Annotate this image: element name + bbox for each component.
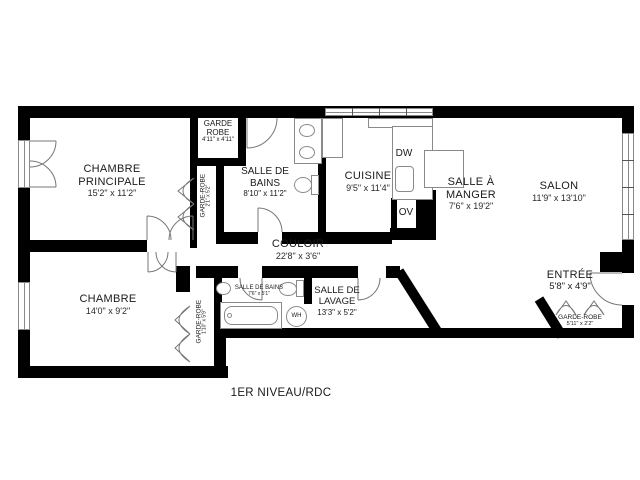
room-name: LAVAGE <box>300 297 374 308</box>
room-label-salon: SALON 11'9" x 13'10" <box>520 180 598 203</box>
room-label-garde-robe-entree: GARDE-ROBE 5'11" x 2'2" <box>548 314 612 328</box>
room-dims: 7'6" x 5'1" <box>228 292 290 298</box>
room-dims: 4'11" x 4'11" <box>196 137 240 144</box>
room-name: CHAMBRE <box>58 293 158 306</box>
room-dims: 22'8" x 3'6" <box>258 251 338 261</box>
room-name: GARDE <box>196 119 240 128</box>
water-heater-label: WH <box>286 313 307 320</box>
closet-bifold-icon <box>584 301 604 315</box>
room-name: ROBE <box>196 128 240 137</box>
room-dims: 11'9" x 13'10" <box>520 193 598 203</box>
room-label-salle-de-lavage: SALLE DE LAVAGE 13'3" x 5'2" <box>300 286 374 317</box>
floor-plan: CHAMBRE PRINCIPALE 15'2" x 11'2" GARDE R… <box>0 0 640 480</box>
door-arc-salle-de-bains <box>258 208 282 232</box>
room-dims: 8'10" x 11'2" <box>235 189 295 198</box>
room-name: SALLE DE <box>235 166 295 178</box>
room-label-chambre: CHAMBRE 14'0" x 9'2" <box>58 293 158 316</box>
room-name: ENTRÉE <box>535 269 605 282</box>
door-arc-chambre-principale <box>169 216 193 240</box>
door-arc-garde-robe <box>247 118 277 148</box>
room-label-garde-robe-chambre: GARDE-ROBE 1'10" x 5'9" <box>195 287 208 357</box>
oven-label: OV <box>392 207 420 219</box>
wall-diagonal-lavage <box>399 271 437 331</box>
room-name: BAINS <box>235 178 295 190</box>
room-label-entree: ENTRÉE 5'8" x 4'9" <box>535 269 605 293</box>
room-label-salle-a-manger: SALLE À MANGER 7'6" x 19'2" <box>438 176 504 212</box>
closet-bifold-icon <box>175 306 190 334</box>
room-label-cuisine: CUISINE 9'5" x 11'4" <box>332 170 404 193</box>
floor-title: 1ER NIVEAU/RDC <box>200 387 362 400</box>
door-arc-chambre-principale <box>147 216 171 240</box>
room-dims: 2'1" x 5'2" <box>207 161 213 231</box>
closet-bifold-icon <box>175 334 190 362</box>
room-dims: 1'10" x 5'9" <box>203 287 209 357</box>
room-label-chambre-principale: CHAMBRE PRINCIPALE 15'2" x 11'2" <box>52 163 172 199</box>
room-label-garde-robe-cp: GARDE-ROBE 2'1" x 5'2" <box>199 161 212 231</box>
closet-bifold-icon <box>556 301 576 315</box>
room-dims: 15'2" x 11'2" <box>52 188 172 198</box>
dishwasher-label: DW <box>390 148 418 160</box>
room-dims: 14'0" x 9'2" <box>58 306 158 316</box>
room-label-couloir: COULOIR 22'8" x 3'6" <box>258 238 338 261</box>
room-name: PRINCIPALE <box>52 176 172 189</box>
room-label-salle-de-bains: SALLE DE BAINS 8'10" x 11'2" <box>235 166 295 198</box>
room-name: SALLE À <box>438 176 504 189</box>
room-label-garde-robe-haut: GARDE ROBE 4'11" x 4'11" <box>196 119 240 144</box>
room-name: CUISINE <box>332 170 404 183</box>
room-dims: 5'8" x 4'9" <box>535 282 605 293</box>
room-name: MANGER <box>438 189 504 202</box>
room-label-salle-de-bains-2: SALLE DE BAINS 7'6" x 5'1" <box>228 285 290 298</box>
room-name: COULOIR <box>258 238 338 251</box>
room-dims: 5'11" x 2'2" <box>548 321 612 327</box>
room-dims: 9'5" x 11'4" <box>332 183 404 193</box>
room-name: GARDE-ROBE <box>548 314 612 321</box>
room-name: CHAMBRE <box>52 163 172 176</box>
closet-bifold-icon <box>178 178 194 204</box>
room-dims: 13'3" x 5'2" <box>300 308 374 317</box>
room-dims: 7'6" x 19'2" <box>438 201 504 211</box>
room-name: SALON <box>520 180 598 193</box>
